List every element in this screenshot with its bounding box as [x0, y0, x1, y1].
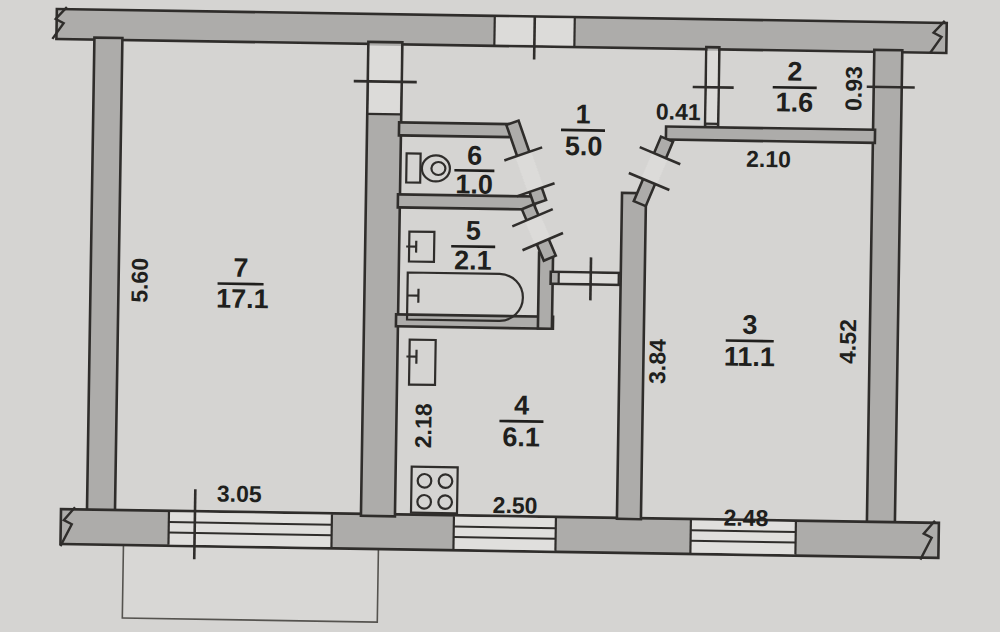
room4-number: 4 [514, 390, 530, 420]
entrance-door-tick [534, 16, 535, 59]
dim-room3-window: 2.48 [723, 505, 768, 532]
room7-number: 7 [233, 253, 249, 283]
room3-left-wall [617, 193, 646, 519]
closet-bottom-wall [666, 127, 875, 143]
kitchen-door-tick [590, 257, 591, 300]
room4-area: 6.1 [502, 422, 540, 453]
room5-area: 2.1 [454, 245, 492, 276]
left-wall [87, 38, 122, 513]
room2-area: 1.6 [775, 87, 813, 118]
dim-hall-nook: 0.41 [656, 98, 701, 125]
floor-plan-drawing: 1 5.0 2 1.6 3 11.1 4 6.1 5 2.1 6 1.0 [0, 0, 1000, 632]
room3-area: 11.1 [724, 341, 776, 372]
floor-plan-document: 1 5.0 2 1.6 3 11.1 4 6.1 5 2.1 6 1.0 [0, 0, 1000, 632]
dim-closet-depth: 0.93 [840, 66, 867, 111]
dim-room3-left: 3.84 [644, 339, 671, 384]
room1-number: 1 [576, 99, 592, 129]
right-wall [867, 50, 902, 525]
room7-door-tick [354, 81, 417, 82]
window-kitchen [453, 516, 556, 551]
room6-number: 6 [467, 140, 483, 170]
room5-number: 5 [466, 215, 482, 245]
dim-kitchen-window: 2.50 [493, 492, 538, 519]
closet-door-tick [693, 87, 734, 88]
room6-area: 1.0 [455, 169, 493, 200]
dim-room3-right: 4.52 [834, 319, 861, 364]
toilet-top-wall [399, 122, 517, 137]
right-wall-tick [867, 87, 915, 88]
room7-area: 17.1 [216, 284, 269, 315]
room3-number: 3 [742, 310, 758, 340]
room2-number: 2 [787, 56, 803, 86]
window-dimension-tick [194, 489, 195, 559]
dim-room3-top: 2.10 [746, 146, 791, 173]
room1-area: 5.0 [565, 131, 603, 162]
bath-right-wall [538, 253, 553, 329]
dim-kitchen-left: 2.18 [410, 403, 437, 448]
dim-room7-height: 5.60 [126, 258, 153, 303]
dim-room7-window: 3.05 [217, 481, 262, 508]
